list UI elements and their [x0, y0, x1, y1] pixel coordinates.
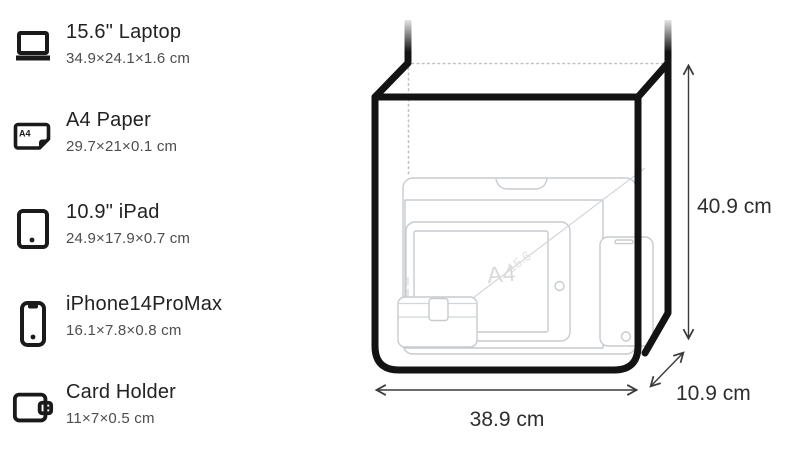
bag-top-left-edge — [375, 63, 408, 97]
height-dimension: 40.9 cm — [689, 66, 772, 338]
bag-wireframe: A4 15.6 40.9 cm 38.9 cm 10.9 cm — [0, 0, 800, 455]
bag-top-right-edge — [638, 63, 668, 97]
depth-dimension: 10.9 cm — [651, 353, 751, 405]
ghost-iphone — [600, 237, 653, 346]
ghost-card-holder — [398, 297, 477, 347]
bag-capacity-diagram: 15.6" Laptop 34.9×24.1×1.6 cm A4 A4 Pape… — [0, 0, 800, 455]
width-label: 38.9 cm — [470, 408, 545, 431]
height-label: 40.9 cm — [697, 195, 772, 218]
width-dimension: 38.9 cm — [377, 390, 636, 431]
depth-label: 10.9 cm — [676, 382, 751, 405]
